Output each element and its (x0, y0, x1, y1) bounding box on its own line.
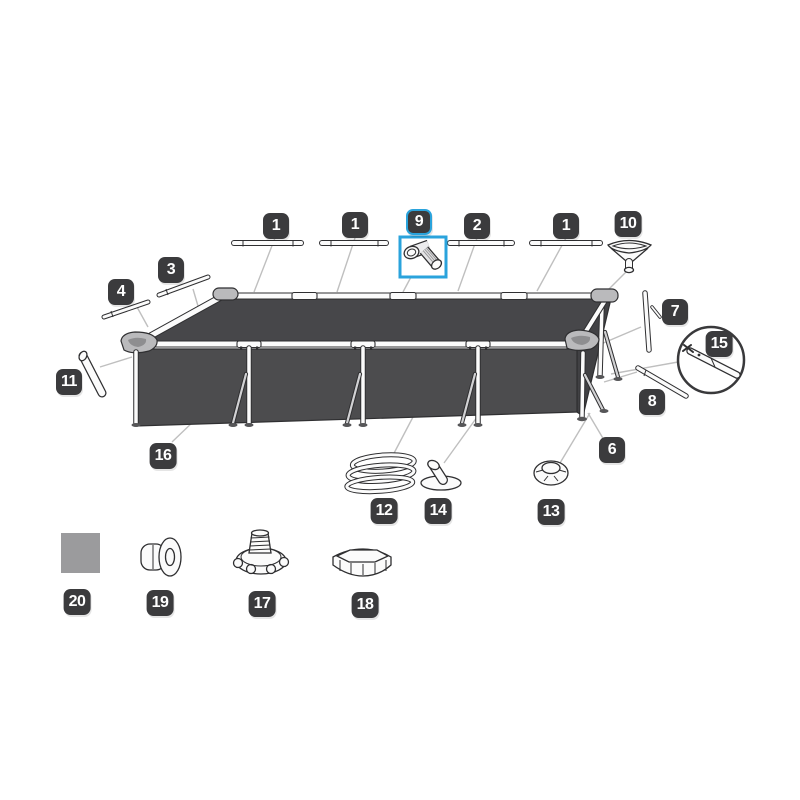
pool-assembly (121, 288, 623, 427)
callout-19[interactable]: 19 (147, 590, 174, 616)
part-20-repair-patch (61, 533, 100, 573)
part-12-hose-coil (345, 453, 416, 494)
part-13-leg-cap (534, 461, 568, 485)
callout-1a[interactable]: 1 (263, 213, 289, 239)
part-1-top-rail-1 (234, 240, 301, 247)
part-1-top-rail-3 (532, 240, 600, 247)
callout-11[interactable]: 11 (56, 369, 82, 395)
callout-1c[interactable]: 1 (553, 213, 579, 239)
part-2-top-rail (450, 240, 512, 247)
callout-1b[interactable]: 1 (342, 212, 368, 238)
part-9-selection[interactable] (400, 237, 446, 277)
callout-3[interactable]: 3 (158, 257, 184, 283)
callout-17[interactable]: 17 (249, 591, 276, 617)
part-1-top-rail-2 (322, 240, 386, 247)
part-14-brace-foot (421, 459, 461, 490)
diagram-canvas (0, 0, 800, 800)
callout-9[interactable]: 9 (406, 209, 432, 235)
callout-4[interactable]: 4 (108, 279, 134, 305)
part-17-drain-valve (234, 530, 289, 574)
callout-12[interactable]: 12 (371, 498, 398, 524)
part-19-strainer (141, 538, 181, 576)
callout-16[interactable]: 16 (150, 443, 177, 469)
callout-10[interactable]: 10 (615, 211, 642, 237)
callout-8[interactable]: 8 (639, 389, 665, 415)
parts-diagram: 11921103471511816612141320191718 (0, 0, 800, 800)
part-7-pin-tube (645, 293, 660, 350)
part-10-corner-cap (608, 241, 651, 273)
part-18-valve-cap (333, 549, 391, 576)
callout-15[interactable]: 15 (706, 331, 733, 357)
callout-7[interactable]: 7 (662, 299, 688, 325)
callout-20[interactable]: 20 (64, 589, 91, 615)
callout-13[interactable]: 13 (538, 499, 565, 525)
callout-6[interactable]: 6 (599, 437, 625, 463)
callout-18[interactable]: 18 (352, 592, 379, 618)
callout-2[interactable]: 2 (464, 213, 490, 239)
callout-14[interactable]: 14 (425, 498, 452, 524)
